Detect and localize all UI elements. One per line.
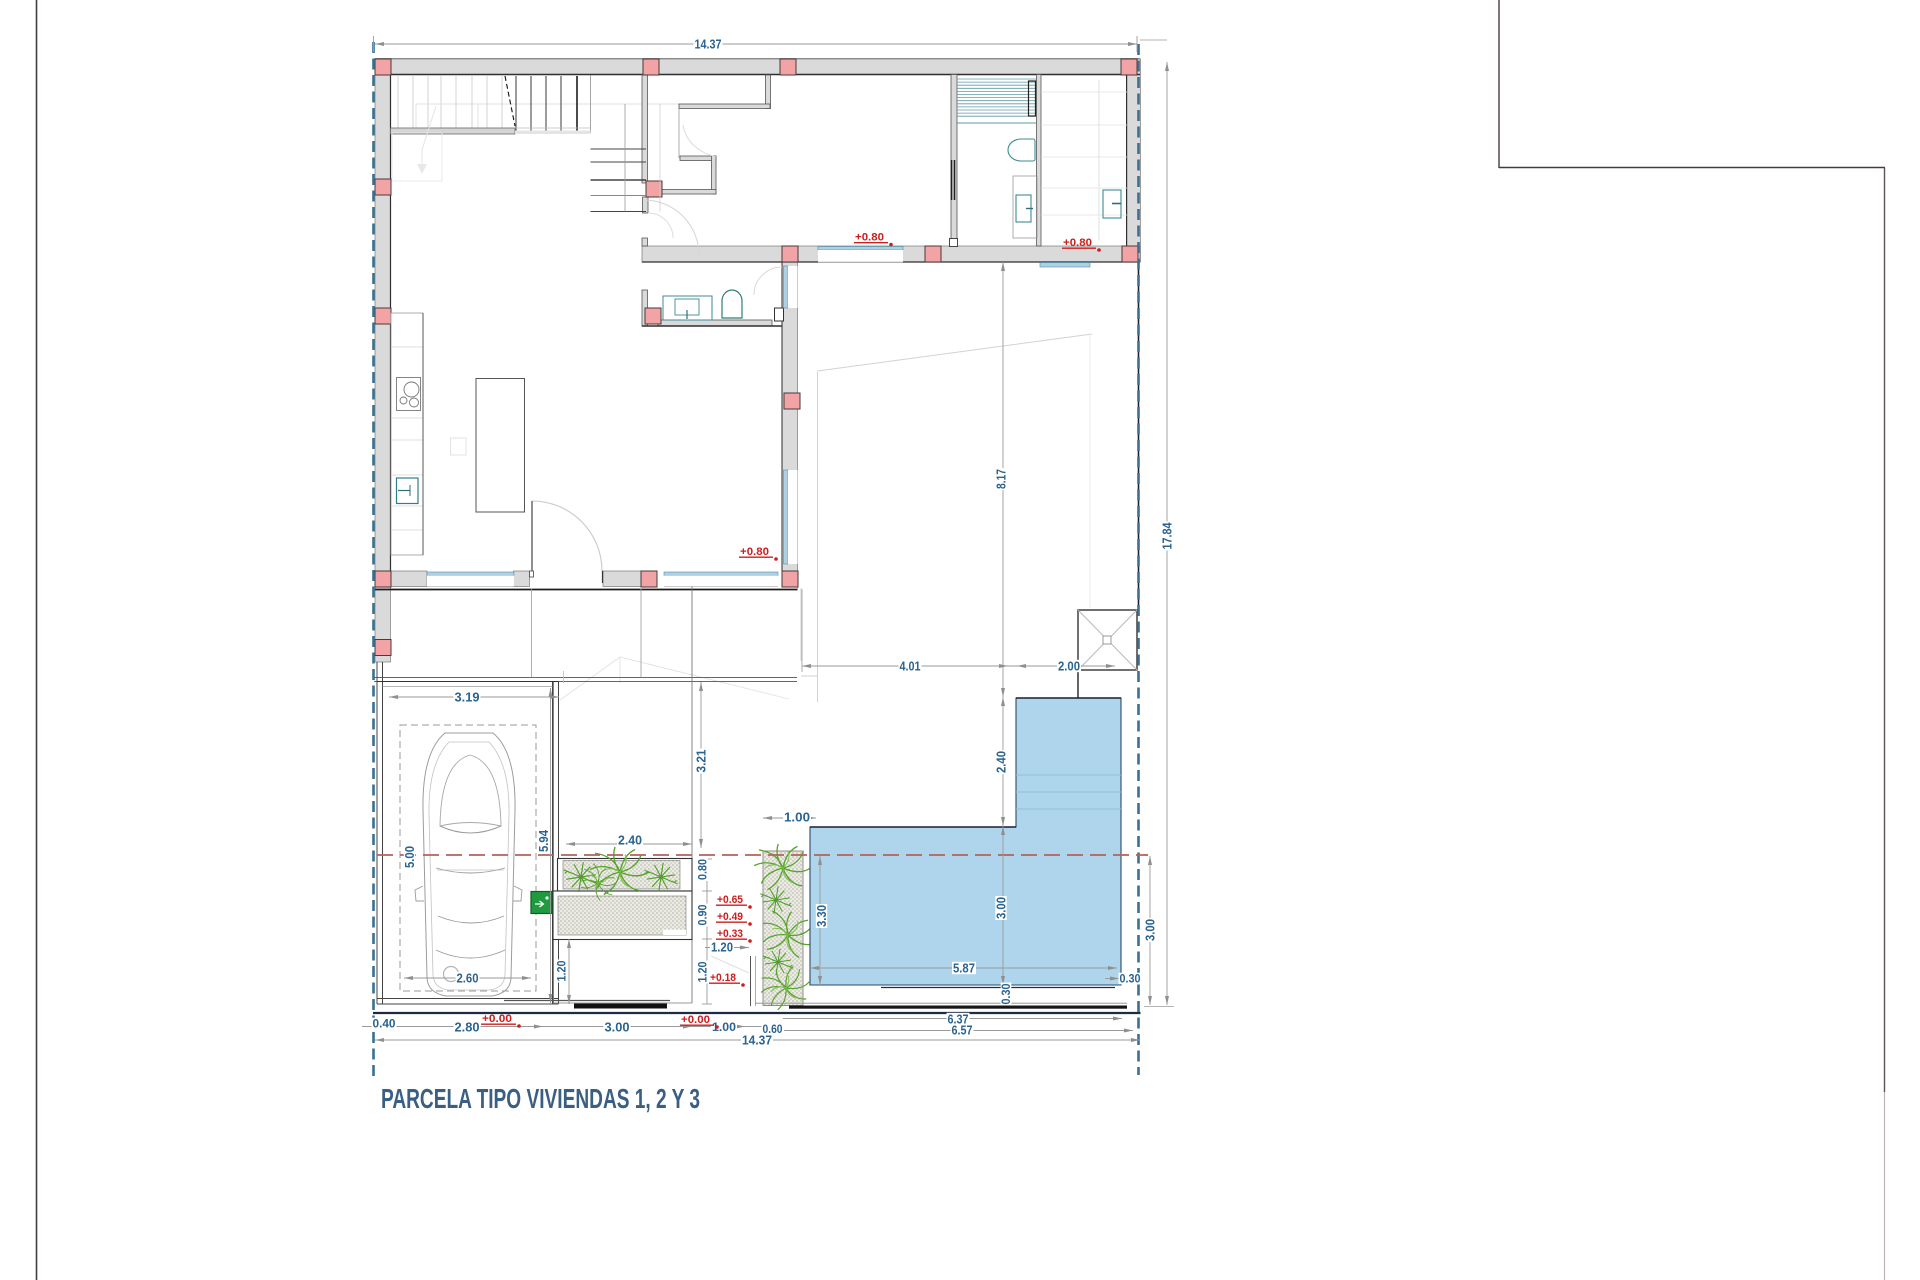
svg-text:5.00: 5.00 [402, 846, 417, 868]
svg-text:3.00: 3.00 [605, 1019, 630, 1034]
svg-text:14.37: 14.37 [742, 1032, 772, 1047]
svg-text:17.84: 17.84 [1159, 522, 1174, 550]
svg-text:1.00: 1.00 [784, 809, 810, 824]
svg-text:+0.49: +0.49 [717, 911, 743, 923]
svg-text:3.30: 3.30 [814, 905, 829, 927]
svg-text:2.60: 2.60 [457, 970, 479, 985]
svg-text:6.57: 6.57 [952, 1022, 973, 1037]
svg-text:PARCELA TIPO VIVIENDAS 1, 2 Y: PARCELA TIPO VIVIENDAS 1, 2 Y 3 [381, 1083, 700, 1114]
svg-text:0.80: 0.80 [695, 859, 709, 880]
svg-text:8.17: 8.17 [993, 469, 1008, 489]
svg-text:1.20: 1.20 [554, 960, 568, 981]
svg-text:+0.65: +0.65 [717, 894, 743, 906]
svg-text:14.37: 14.37 [695, 36, 722, 51]
svg-text:1.20: 1.20 [711, 939, 733, 954]
svg-text:1.20: 1.20 [695, 961, 709, 982]
svg-text:3.19: 3.19 [455, 689, 480, 704]
svg-text:+0.80: +0.80 [740, 546, 769, 558]
svg-text:+0.33: +0.33 [717, 928, 743, 940]
svg-text:2.40: 2.40 [618, 832, 642, 847]
svg-text:4.01: 4.01 [900, 658, 921, 673]
svg-text:2.00: 2.00 [1058, 658, 1080, 673]
svg-text:2.80: 2.80 [455, 1019, 480, 1034]
svg-text:0.90: 0.90 [695, 904, 709, 925]
svg-text:5.94: 5.94 [536, 829, 551, 852]
svg-text:+0.00: +0.00 [681, 1014, 710, 1026]
svg-text:+0.00: +0.00 [482, 1013, 512, 1025]
svg-text:0.30: 0.30 [1120, 971, 1141, 985]
svg-text:+0.80: +0.80 [855, 232, 884, 244]
svg-text:+0.18: +0.18 [710, 972, 736, 984]
svg-text:0.40: 0.40 [373, 1016, 396, 1030]
svg-text:0.30: 0.30 [999, 983, 1013, 1004]
svg-text:2.40: 2.40 [993, 751, 1008, 773]
svg-text:3.21: 3.21 [693, 750, 708, 773]
svg-text:5.87: 5.87 [953, 960, 975, 975]
svg-text:3.00: 3.00 [993, 897, 1008, 919]
svg-text:3.00: 3.00 [1142, 919, 1157, 941]
svg-text:+0.80: +0.80 [1063, 237, 1092, 249]
